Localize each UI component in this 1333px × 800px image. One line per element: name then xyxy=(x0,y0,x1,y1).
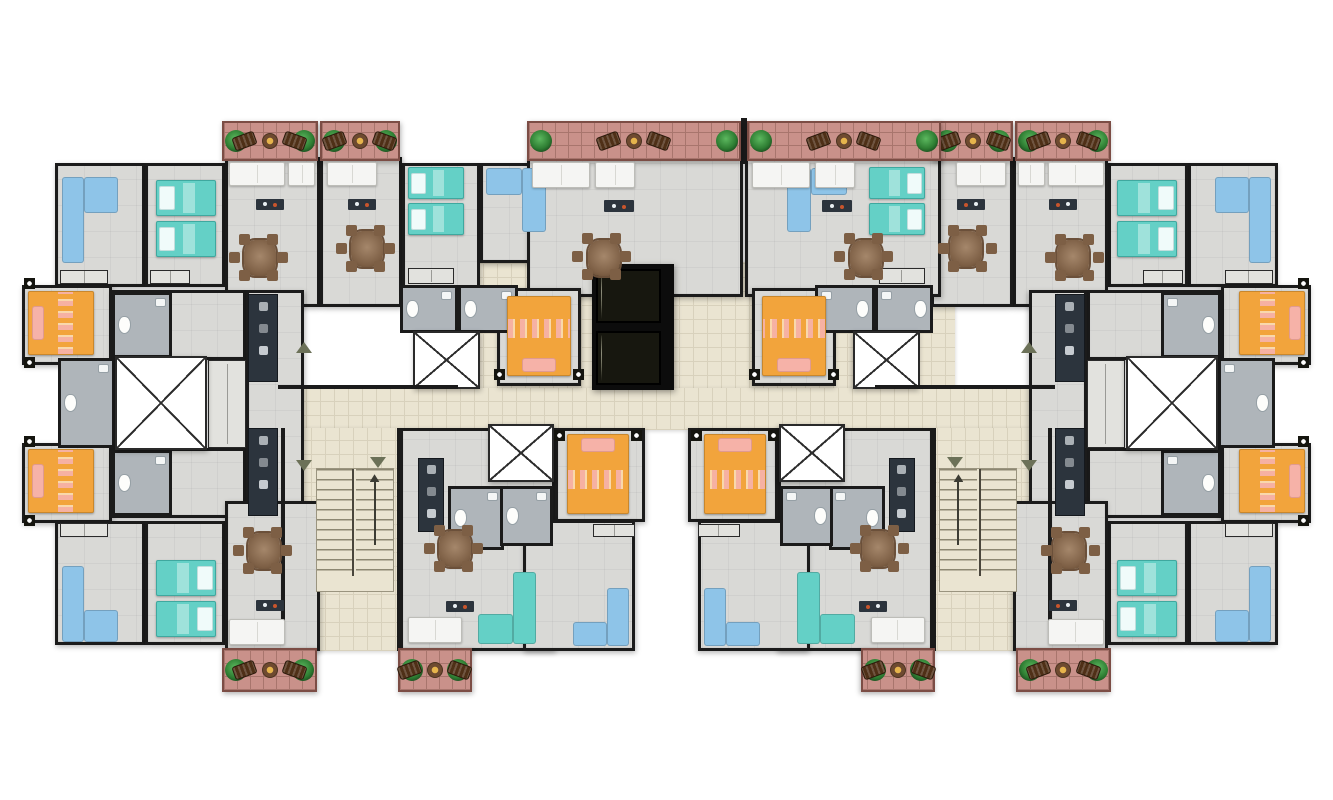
dining-sw-m xyxy=(1042,524,1096,578)
plant-icon xyxy=(716,130,738,152)
closet-s-center xyxy=(593,524,635,537)
up-arrow-icon xyxy=(957,481,959,544)
sofa-living-nw-a-m xyxy=(1048,162,1104,186)
shaft-n-small-m xyxy=(853,331,920,389)
nightstand xyxy=(828,369,839,380)
bed-master-w-up xyxy=(28,291,94,355)
sofa-s-mid-teal xyxy=(478,572,536,644)
bed-master-w-up-m xyxy=(1239,291,1305,355)
lounge-chair xyxy=(645,130,671,151)
sofa-living-s-mid xyxy=(408,617,462,643)
tv-desk-s-mid-m xyxy=(859,601,887,612)
sofa-living-nw-b-m xyxy=(956,162,1006,186)
bed-master-w-dn xyxy=(28,449,94,513)
patio-table xyxy=(626,133,642,149)
up-arrow-icon xyxy=(374,481,376,544)
shaft-s-small-m xyxy=(779,424,845,482)
closet-nw-a xyxy=(60,270,108,284)
wall-stair-lobby-e-m xyxy=(932,428,936,651)
sofa-s-center-blue-m xyxy=(704,588,760,646)
sofa-nw-blue-m xyxy=(1215,177,1271,263)
closet-nw-a-m xyxy=(1225,270,1273,284)
bed-nw-teal-b xyxy=(156,221,216,257)
balcony-sw-b xyxy=(398,648,472,692)
balcony-nw-a-m xyxy=(1015,121,1111,161)
patio-table xyxy=(836,133,852,149)
dining-nc-a xyxy=(576,230,632,286)
nightstand xyxy=(1298,357,1309,368)
bath-w-mid xyxy=(58,358,115,448)
dining-s-mid-m xyxy=(851,522,905,576)
tv-desk-nc-b xyxy=(822,200,852,212)
shaft-s-small xyxy=(488,424,554,482)
dining-nw-a xyxy=(233,231,287,285)
nightstand xyxy=(24,515,35,526)
bed-nw-teal-a-m xyxy=(1117,180,1177,216)
bed-s-center xyxy=(567,434,629,514)
patio-table xyxy=(352,133,368,149)
bed-sw-teal-a-m xyxy=(1117,560,1177,596)
tv-desk-nw-b xyxy=(348,199,376,210)
sofa-s-mid-teal-m xyxy=(797,572,855,644)
closet-sw-a-m xyxy=(1225,523,1273,537)
bed-sw-teal-b-m xyxy=(1117,601,1177,637)
sofa-nw-blue xyxy=(62,177,118,263)
kitchen-s-mid-m xyxy=(889,458,915,532)
sofa-sw-blue xyxy=(62,566,118,642)
stair-core-w xyxy=(115,356,207,450)
balcony-nw-b-m xyxy=(933,121,1013,161)
patio-table xyxy=(262,133,278,149)
nightstand xyxy=(691,430,702,441)
bath-w-dn-m xyxy=(1161,450,1221,516)
wall-stair-lobby-e xyxy=(397,428,401,651)
patio-table xyxy=(427,662,443,678)
bed-sw-teal-a xyxy=(156,560,216,596)
lounge-chair xyxy=(855,130,881,151)
stairs-w xyxy=(316,468,394,592)
nightstand xyxy=(749,369,760,380)
tv-desk-s-mid xyxy=(446,601,474,612)
bath-w-dn xyxy=(112,450,172,516)
bed-master-w-dn-m xyxy=(1239,449,1305,513)
stair-run xyxy=(317,469,354,576)
bath-w-up-m xyxy=(1161,292,1221,358)
kitchen-w-up xyxy=(248,294,278,382)
tv-desk-sw xyxy=(256,600,284,611)
elevator-car xyxy=(596,331,661,385)
bath-s-center-m xyxy=(780,486,833,546)
sofa-sw-blue-m xyxy=(1215,566,1271,642)
tv-desk-sw-m xyxy=(1049,600,1077,611)
balcony-nc-b xyxy=(747,121,941,161)
tv-desk-nc-a xyxy=(604,200,634,212)
kitchen-w-up-m xyxy=(1055,294,1085,382)
kitchen-w-dn-m xyxy=(1055,428,1085,516)
bed-n-teal-a xyxy=(408,167,464,199)
nightstand xyxy=(494,369,505,380)
nightstand xyxy=(24,436,35,447)
laundry-w-mid-m xyxy=(1087,360,1125,448)
bed-nw-teal-b-m xyxy=(1117,221,1177,257)
dining-nw-a-m xyxy=(1046,231,1100,285)
sofa-s-center-blue xyxy=(573,588,629,646)
wall-corridor-top xyxy=(278,385,458,389)
wall-corridor-top-m xyxy=(875,385,1055,389)
bed-n-teal-b xyxy=(408,203,464,235)
dining-sw xyxy=(237,524,291,578)
closet-nw-b-m xyxy=(1143,270,1183,284)
sofa-living-nc-a xyxy=(532,162,590,188)
shaft-n-small xyxy=(413,331,480,389)
sofa-living-nw-a2 xyxy=(288,162,315,186)
nightstand xyxy=(1298,436,1309,447)
kitchen-w-dn xyxy=(248,428,278,516)
bath-w-up xyxy=(112,292,172,358)
lounge-chair xyxy=(595,130,621,151)
stair-core-w-m xyxy=(1126,356,1218,450)
patio-table xyxy=(965,133,981,149)
sofa-living-nc-a2 xyxy=(595,162,635,188)
nightstand xyxy=(554,430,565,441)
stair-run xyxy=(979,469,1016,576)
balcony-sw-a xyxy=(222,648,317,692)
dining-nw-b-m xyxy=(939,222,993,276)
bed-master-nc xyxy=(507,296,571,376)
tv-desk-nw-a-m xyxy=(1049,199,1077,210)
lounge-chair xyxy=(805,130,831,151)
bath-w-mid-m xyxy=(1218,358,1275,448)
balcony-nc-a xyxy=(527,121,741,161)
balcony-sw-b-m xyxy=(861,648,935,692)
bed-nw-teal-a xyxy=(156,180,216,216)
balcony-nw-a xyxy=(222,121,318,161)
patio-table xyxy=(890,662,906,678)
balcony-nw-b xyxy=(320,121,400,161)
patio-table xyxy=(1055,133,1071,149)
bed-sw-teal-b xyxy=(156,601,216,637)
nightstand xyxy=(1298,278,1309,289)
nightstand xyxy=(768,430,779,441)
bath-n-mid-a xyxy=(400,285,458,333)
bath-n-mid-a-m xyxy=(875,285,933,333)
sofa-living-nw-a xyxy=(229,162,285,186)
patio-table xyxy=(1056,662,1072,678)
plant-icon xyxy=(750,130,772,152)
tv-desk-nw-a xyxy=(256,199,284,210)
bed-master-nc-m xyxy=(762,296,826,376)
sofa-living-nc-b2 xyxy=(815,162,855,188)
sofa-living-nw-a2-m xyxy=(1018,162,1045,186)
laundry-w-mid xyxy=(208,360,246,448)
sofa-living-nw-b xyxy=(327,162,377,186)
patio-table xyxy=(262,662,278,678)
plant-icon xyxy=(530,130,552,152)
nightstand xyxy=(573,369,584,380)
closet-n-teal xyxy=(408,268,454,284)
kitchen-s-mid xyxy=(418,458,444,532)
nightstand xyxy=(24,278,35,289)
nightstand xyxy=(631,430,642,441)
bed-s-center-m xyxy=(704,434,766,514)
corridor-main xyxy=(278,388,1055,430)
bath-s-center xyxy=(500,486,553,546)
nightstand xyxy=(1298,515,1309,526)
sofa-living-sw xyxy=(229,619,285,645)
plant-icon xyxy=(916,130,938,152)
dining-nc-b xyxy=(838,230,894,286)
closet-nw-b xyxy=(150,270,190,284)
sofa-living-sw-m xyxy=(1048,619,1104,645)
closet-sw-a xyxy=(60,523,108,537)
tv-desk-nw-b-m xyxy=(957,199,985,210)
closet-s-center-m xyxy=(698,524,740,537)
dining-s-mid xyxy=(428,522,482,576)
balcony-sw-a-m xyxy=(1016,648,1111,692)
bed-n-teal-a-m xyxy=(869,167,925,199)
sofa-living-nc-b xyxy=(752,162,810,188)
nightstand xyxy=(24,357,35,368)
floor-plan-canvas xyxy=(0,0,1333,800)
dining-nw-b xyxy=(340,222,394,276)
sofa-living-s-mid-m xyxy=(871,617,925,643)
stairs-w-m xyxy=(939,468,1017,592)
